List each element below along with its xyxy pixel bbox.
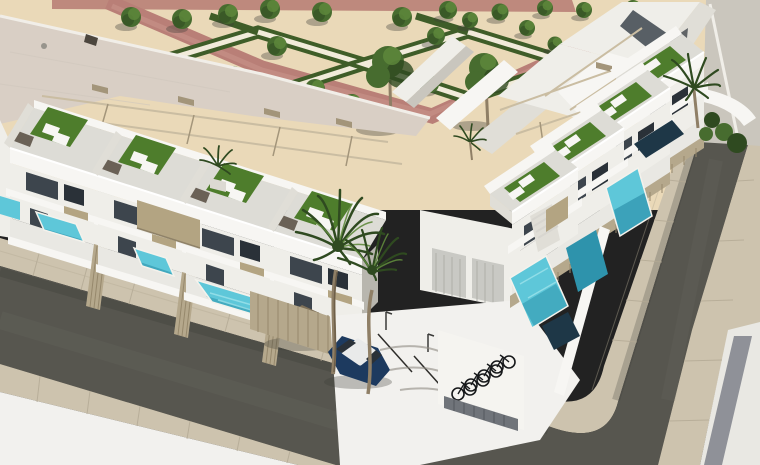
garage-door — [432, 248, 466, 298]
render-image: Aerial 3D rendering of a modern white re… — [0, 0, 760, 465]
architectural-render: Aerial 3D rendering of a modern white re… — [0, 0, 760, 465]
tree-canopy — [366, 64, 390, 88]
palm-crown — [332, 240, 344, 252]
roof-vent — [41, 43, 47, 49]
tree-canopy-light — [480, 54, 496, 70]
tree-canopy-light — [383, 47, 401, 65]
bush — [704, 112, 720, 128]
palm-crown — [367, 265, 377, 275]
bush — [727, 133, 747, 153]
bush — [699, 127, 713, 141]
